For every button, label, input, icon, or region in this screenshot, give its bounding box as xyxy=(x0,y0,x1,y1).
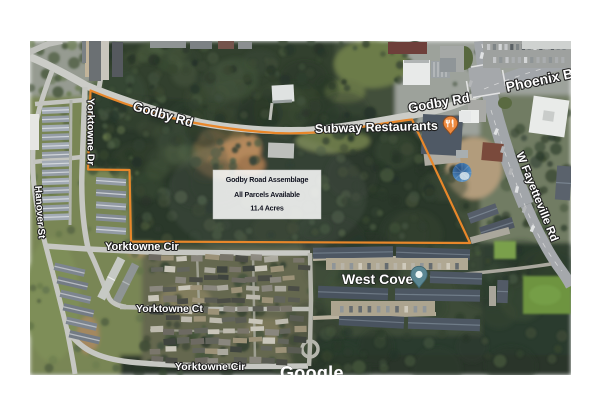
svg-text:All Parcels Available: All Parcels Available xyxy=(234,191,300,199)
svg-text:11.4 Acres: 11.4 Acres xyxy=(250,205,284,213)
svg-text:West Cove: West Cove xyxy=(342,271,414,287)
svg-text:Yorktowne Ct: Yorktowne Ct xyxy=(136,303,203,315)
svg-text:Yorktowne Cir: Yorktowne Cir xyxy=(175,361,245,373)
svg-text:Yorktowne Cir: Yorktowne Cir xyxy=(105,241,179,253)
svg-text:Yorktowne Dr: Yorktowne Dr xyxy=(85,98,97,165)
svg-text:Godby Road Assemblage: Godby Road Assemblage xyxy=(226,176,309,184)
